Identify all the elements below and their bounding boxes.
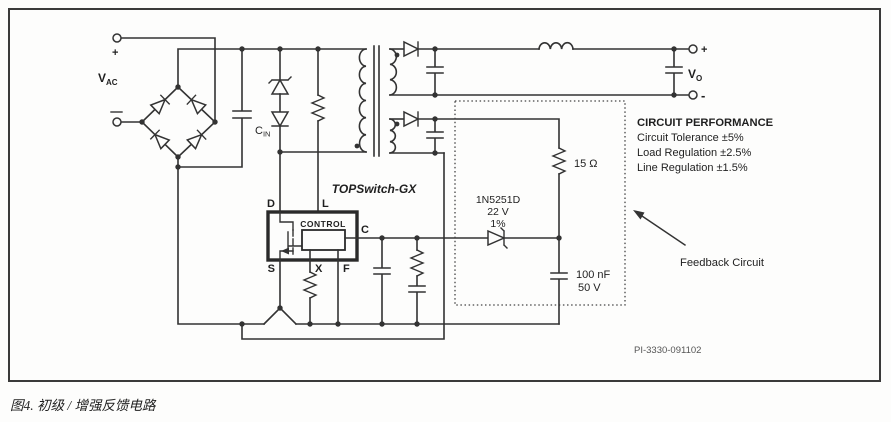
junction-dot — [432, 116, 437, 121]
vo-letter: V — [688, 67, 696, 81]
junction-dot — [175, 84, 180, 89]
input-minus-terminal — [113, 118, 121, 126]
junction-dot — [414, 235, 419, 240]
performance-line: Load Regulation ±2.5% — [637, 147, 752, 159]
junction-dot — [139, 119, 144, 124]
junction-dot — [671, 92, 676, 97]
performance-line: Line Regulation ±1.5% — [637, 162, 748, 174]
output-plus-label: + — [701, 44, 707, 56]
junction-dot — [175, 164, 180, 169]
feedback-circuit-label: Feedback Circuit — [680, 257, 765, 269]
performance-line: Circuit Tolerance ±5% — [637, 132, 744, 144]
junction-dot — [414, 321, 419, 326]
bias-phase-dot — [395, 122, 400, 127]
vac-subscript: AC — [106, 78, 118, 87]
input-plus-terminal — [113, 34, 121, 42]
output-minus-terminal — [689, 91, 697, 99]
pin-s-label: S — [268, 263, 275, 275]
output-minus-label: - — [701, 88, 705, 103]
junction-dot — [315, 46, 320, 51]
junction-dot — [432, 150, 437, 155]
vac-letter: V — [98, 71, 106, 85]
capacitor-voltage-label: 50 V — [578, 282, 601, 294]
junction-dot — [432, 46, 437, 51]
primary-phase-dot — [355, 144, 360, 149]
junction-dot — [556, 235, 561, 240]
pin-d-label: D — [267, 198, 275, 210]
junction-dot — [379, 235, 384, 240]
part-number: PI-3330-091102 — [634, 345, 701, 356]
control-box — [302, 230, 345, 250]
device-name: TOPSwitch-GX — [332, 182, 417, 196]
figure-caption: 图4. 初级 / 增强反馈电路 — [10, 398, 157, 413]
pin-l-label: L — [322, 198, 329, 210]
capacitor-value-label: 100 nF — [576, 269, 611, 281]
secondary-phase-dot — [395, 53, 400, 58]
junction-dot — [239, 321, 244, 326]
zener-tolerance-label: 1% — [490, 218, 505, 230]
junction-dot — [239, 46, 244, 51]
cin-letter: C — [255, 125, 263, 137]
control-label: CONTROL — [300, 219, 346, 229]
zener-voltage-label: 22 V — [487, 206, 509, 218]
pin-f-label: F — [343, 263, 350, 275]
output-plus-terminal — [689, 45, 697, 53]
junction-dot — [671, 46, 676, 51]
junction-dot — [175, 154, 180, 159]
performance-title: CIRCUIT PERFORMANCE — [637, 117, 774, 129]
junction-dot — [432, 92, 437, 97]
cin-subscript: IN — [263, 130, 271, 139]
pin-c-label: C — [361, 224, 369, 236]
input-plus-label: + — [112, 47, 118, 59]
zener-part-label: 1N5251D — [476, 194, 521, 206]
figure-canvas: + VAC CIN — [0, 0, 891, 422]
junction-dot — [277, 305, 282, 310]
vo-subscript: O — [696, 74, 702, 83]
resistor-value-label: 15 Ω — [574, 158, 598, 170]
junction-dot — [212, 119, 217, 124]
junction-dot — [277, 149, 282, 154]
junction-dot — [335, 321, 340, 326]
pin-x-label: X — [315, 263, 323, 275]
junction-dot — [379, 321, 384, 326]
circuit-diagram: + VAC CIN — [0, 0, 891, 422]
junction-dot — [277, 46, 282, 51]
junction-dot — [307, 321, 312, 326]
